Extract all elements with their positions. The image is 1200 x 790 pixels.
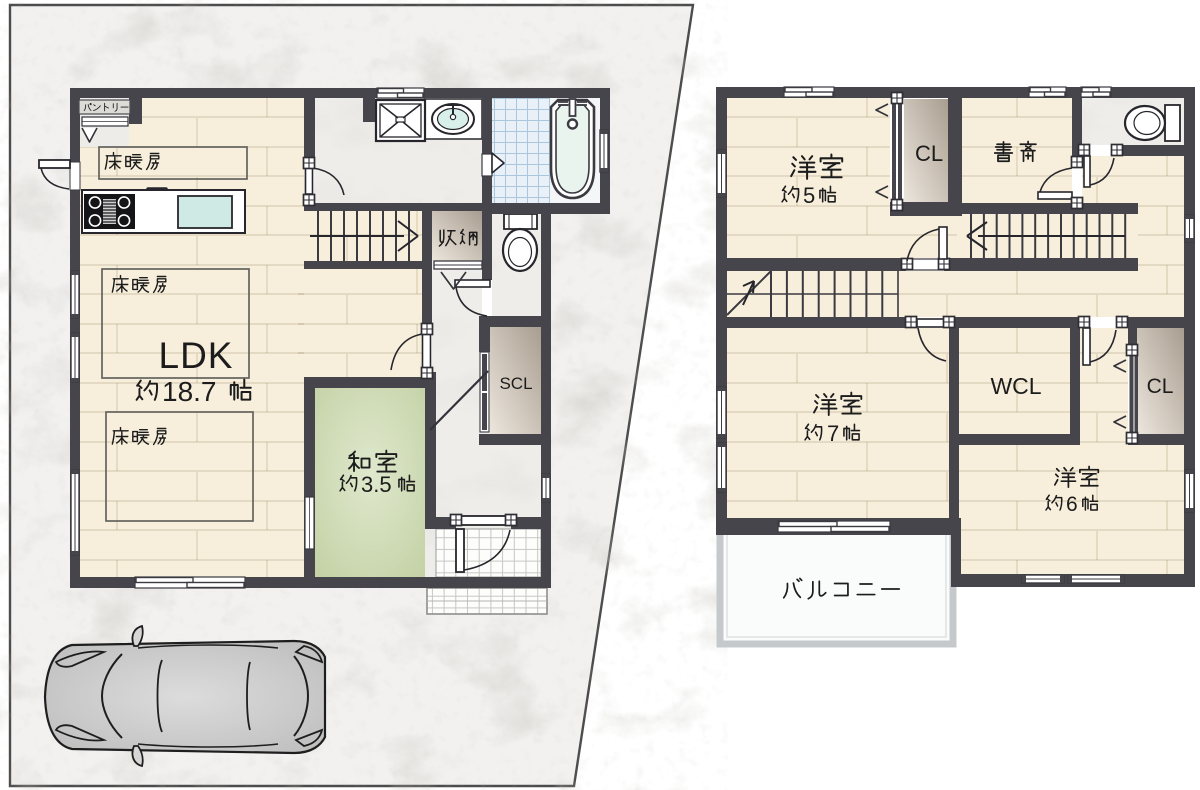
svg-text:WCL: WCL <box>990 373 1041 399</box>
svg-text:6: 6 <box>1066 493 1078 516</box>
svg-text:CL: CL <box>915 141 943 166</box>
svg-text:LDK: LDK <box>159 335 234 376</box>
svg-text:3.5: 3.5 <box>361 472 392 497</box>
svg-text:SCL: SCL <box>499 374 532 393</box>
svg-text:CL: CL <box>1147 375 1174 398</box>
svg-text:18.7: 18.7 <box>162 376 217 407</box>
svg-text:5: 5 <box>803 183 815 208</box>
svg-text:7: 7 <box>827 421 839 446</box>
